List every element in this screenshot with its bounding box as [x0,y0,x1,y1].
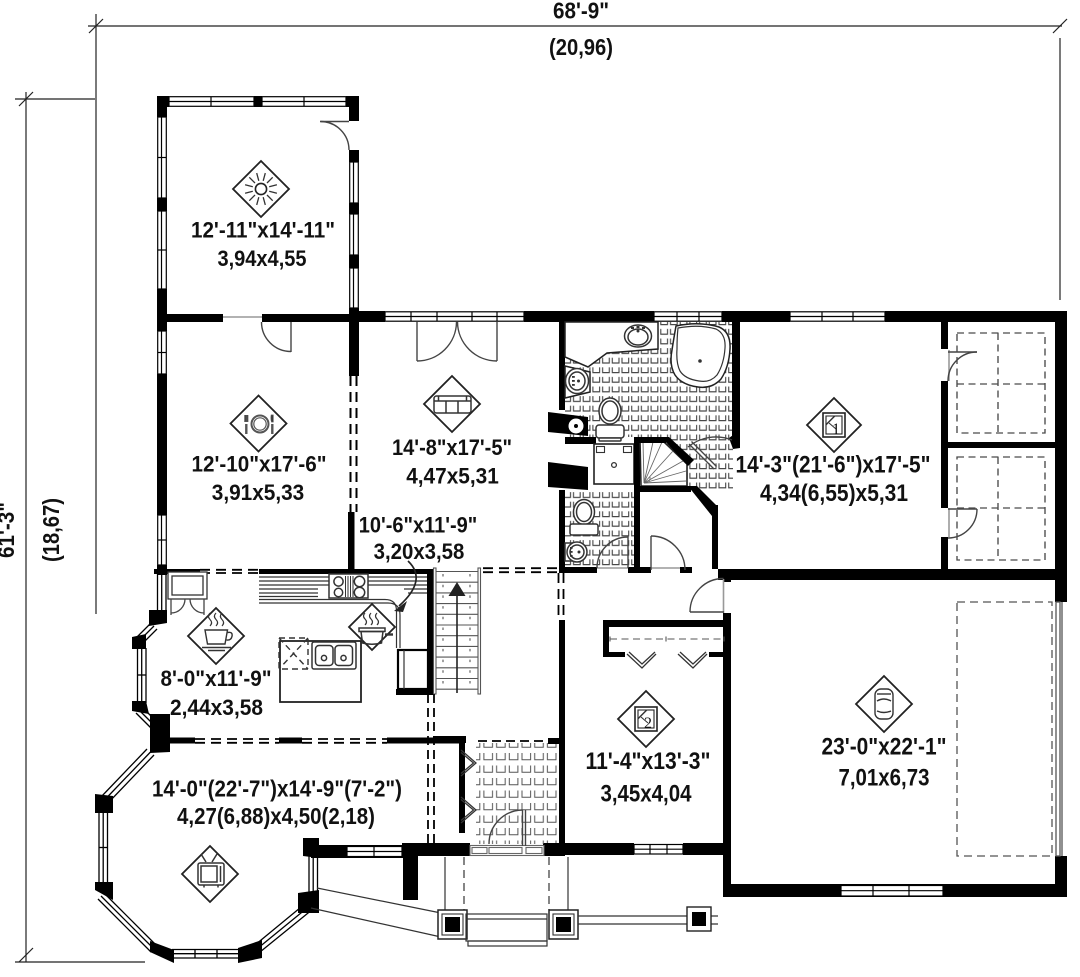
svg-text:14'-3"(21'-6")x17'-5": 14'-3"(21'-6")x17'-5" [736,452,931,479]
svg-text:7,01x6,73: 7,01x6,73 [839,765,930,792]
svg-text:14'-0"(22'-7")x14'-9"(7'-2"): 14'-0"(22'-7")x14'-9"(7'-2") [152,776,402,802]
svg-text:4,47x5,31: 4,47x5,31 [406,464,499,489]
svg-text:68'-9": 68'-9" [553,0,609,24]
svg-text:1: 1 [832,421,840,438]
svg-text:8'-0"x11'-9": 8'-0"x11'-9" [161,666,272,691]
svg-text:(18,67): (18,67) [38,498,64,562]
svg-text:4,27(6,88)x4,50(2,18): 4,27(6,88)x4,50(2,18) [177,803,375,829]
svg-text:12'-11"x14'-11": 12'-11"x14'-11" [191,218,335,243]
svg-text:61'-3": 61'-3" [0,502,19,558]
svg-text:3,45x4,04: 3,45x4,04 [601,781,692,808]
svg-text:12'-10"x17'-6": 12'-10"x17'-6" [192,452,327,477]
svg-text:2,44x3,58: 2,44x3,58 [170,695,263,720]
svg-text:3,91x5,33: 3,91x5,33 [212,480,305,505]
svg-text:14'-8"x17'-5": 14'-8"x17'-5" [392,435,512,460]
svg-text:3,20x3,58: 3,20x3,58 [374,539,465,564]
svg-text:4,34(6,55)x5,31: 4,34(6,55)x5,31 [760,480,908,507]
svg-text:10'-6"x11'-9": 10'-6"x11'-9" [359,513,478,538]
svg-text:2: 2 [644,715,652,732]
svg-text:23'-0"x22'-1": 23'-0"x22'-1" [822,734,947,761]
svg-text:(20,96): (20,96) [549,34,613,60]
svg-text:3,94x4,55: 3,94x4,55 [218,246,307,271]
svg-text:11'-4"x13'-3": 11'-4"x13'-3" [586,748,711,775]
